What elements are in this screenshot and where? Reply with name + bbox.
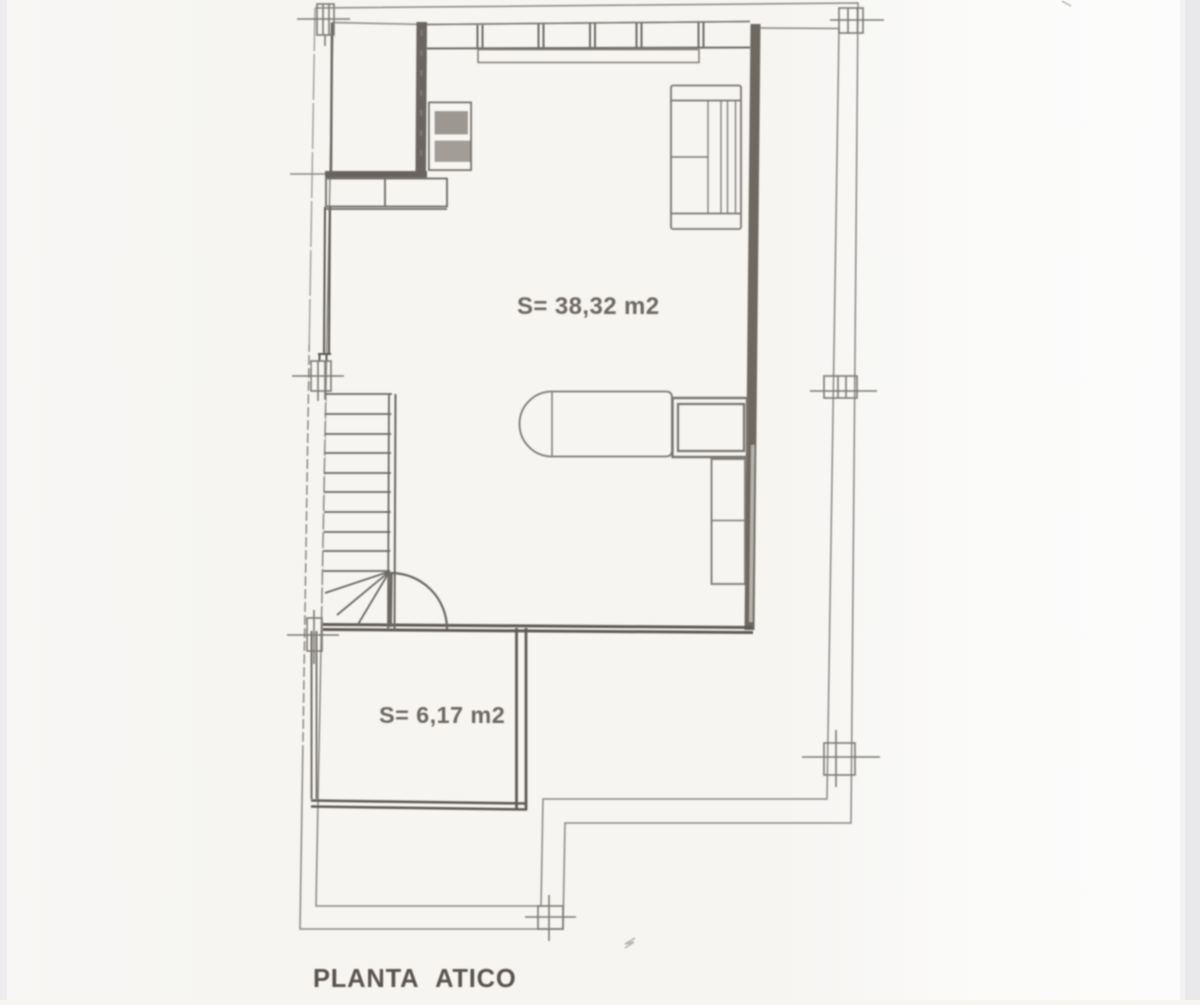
svg-text:PLANTA ATICO: PLANTA ATICO	[313, 965, 517, 993]
svg-text:S= 6,17 m2: S= 6,17 m2	[379, 702, 505, 728]
svg-text:S= 38,32 m2: S= 38,32 m2	[517, 293, 660, 320]
